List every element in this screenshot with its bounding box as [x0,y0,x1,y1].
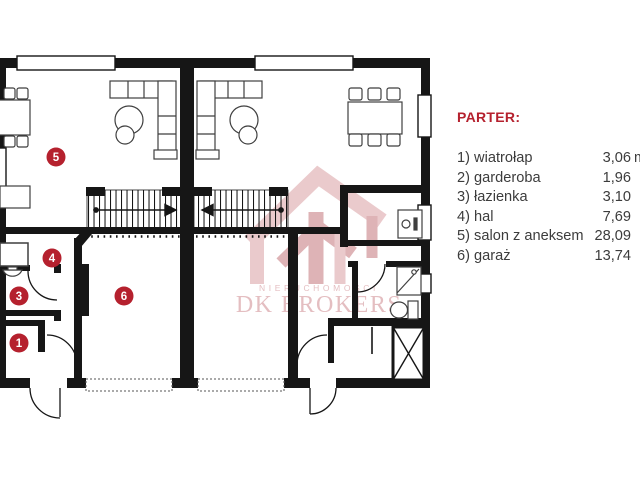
wall-party [180,58,194,388]
legend-item-unit: m² [634,149,640,169]
door-arc-hall-right [297,335,327,365]
legend-item-label: 6) garaż [457,247,511,267]
garage-door-right [198,379,284,391]
legend-item: 4) hal 7,69 [457,208,631,228]
sofa-left [110,81,177,159]
dining-table-left [0,88,30,147]
kitchen-counter [0,186,30,208]
marker-room-3: 3 [10,287,29,306]
legend-item: 3) łazienka 3,10 [457,188,631,208]
sink-right [398,210,422,238]
legend-item-value: 28,09 [594,227,631,247]
closet-garderoba [0,243,28,266]
legend-title: PARTER: [457,109,631,125]
legend-item: 5) salon z aneksem 28,09 [457,227,631,247]
marker-room-6: 6 [115,287,134,306]
legend-items: 1) wiatrołap 3,06 m² 2) garderoba 1,96 3… [457,149,631,267]
sofa-right [196,81,262,159]
marker-room-1: 1 [10,334,29,353]
marker-room-3-label: 3 [16,291,22,303]
legend-item-value: 3,10 [603,188,631,208]
legend: PARTER: 1) wiatrołap 3,06 m² 2) garderob… [457,109,631,125]
marker-room-5-label: 5 [53,152,60,164]
wardrobe-x-box [372,327,424,380]
marker-room-4-label: 4 [49,253,56,265]
toilet-right [391,301,419,319]
window-left-1 [0,148,6,188]
legend-item-label: 5) salon z aneksem [457,227,584,247]
door-arc-entrance-left [30,388,60,418]
door-arc-hall-left [47,335,77,365]
door-arc-entrance-right [310,388,336,414]
legend-item-label: 2) garderoba [457,169,541,189]
legend-item-label: 3) łazienka [457,188,528,208]
dining-table-right [348,88,402,146]
watermark-large-text: DK BROKERS [236,292,402,318]
legend-item-value: 3,06 [603,149,631,169]
garage-door-left [86,379,172,391]
marker-room-5: 5 [47,148,66,167]
window-top-right [255,56,353,70]
legend-item-value: 13,74 [594,247,631,267]
door-arc-bathroom-left [28,271,57,300]
legend-item-label: 1) wiatrołap [457,149,532,169]
legend-item: 6) garaż 13,74 [457,247,631,267]
marker-room-6-label: 6 [121,291,127,303]
legend-item-value: 1,96 [603,169,631,189]
marker-room-4: 4 [43,249,62,268]
shower-right [397,267,421,295]
window-top-left [17,56,115,70]
legend-item: 1) wiatrołap 3,06 m² [457,149,631,169]
window-right-1 [418,95,431,137]
legend-item: 2) garderoba 1,96 [457,169,631,189]
marker-room-1-label: 1 [16,338,23,350]
legend-item-value: 7,69 [603,208,631,228]
legend-item-label: 4) hal [457,208,494,228]
